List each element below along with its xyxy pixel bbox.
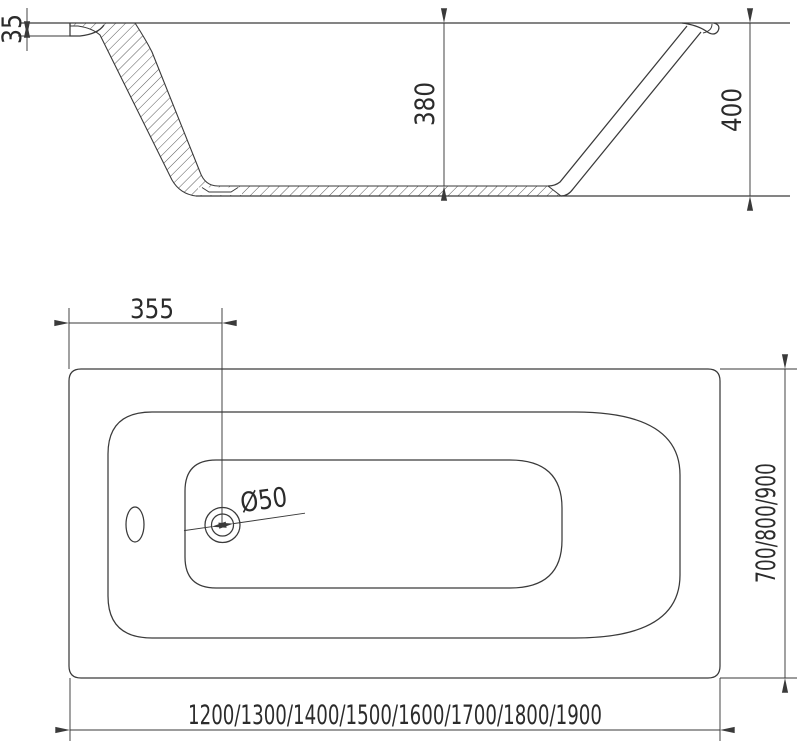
- dim-inner-depth-label: 380: [410, 82, 441, 126]
- dim-rim-height: 35: [0, 8, 28, 51]
- dim-width-options: 700/800/900: [720, 369, 797, 678]
- dim-inner-depth: 380: [410, 23, 444, 186]
- bathtub-dimension-drawing: 35 380 400 355: [0, 0, 800, 748]
- right-wall-outer-line: [561, 32, 701, 196]
- tub-outer-edge: [69, 369, 720, 678]
- dim-total-height: 400: [717, 23, 750, 196]
- dim-width-options-label: 700/800/900: [751, 463, 782, 583]
- drain-inner-circle: [212, 514, 234, 536]
- drain-outer-circle: [205, 508, 240, 543]
- overflow-hole: [126, 507, 144, 542]
- drain-recess-mask: [198, 187, 242, 195]
- plan-view: 355 Ø50 700/800/900 1200/1300/1400/1500/…: [69, 294, 797, 741]
- tub-section-wall-floor: [70, 23, 561, 196]
- dim-length-options-label: 1200/1300/1400/1500/1600/1700/1800/1900: [188, 700, 602, 731]
- dim-length-options: 1200/1300/1400/1500/1600/1700/1800/1900: [70, 678, 720, 741]
- dim-drain-offset-label: 355: [130, 294, 174, 325]
- side-view: 35 380 400: [0, 8, 790, 196]
- rim-right-inner-curve: [703, 24, 712, 33]
- technical-drawing-canvas: 35 380 400 355: [0, 0, 800, 748]
- tub-floor-outline: [185, 460, 562, 588]
- dim-total-height-label: 400: [717, 88, 748, 132]
- dim-drain-diameter: Ø50: [184, 482, 305, 531]
- tub-inner-rim: [108, 412, 680, 638]
- dim-drain-offset: 355: [69, 294, 222, 325]
- dim-rim-height-label: 35: [0, 14, 28, 44]
- dim-drain-diameter-label: Ø50: [238, 482, 289, 519]
- right-wall-inner-line: [548, 26, 687, 186]
